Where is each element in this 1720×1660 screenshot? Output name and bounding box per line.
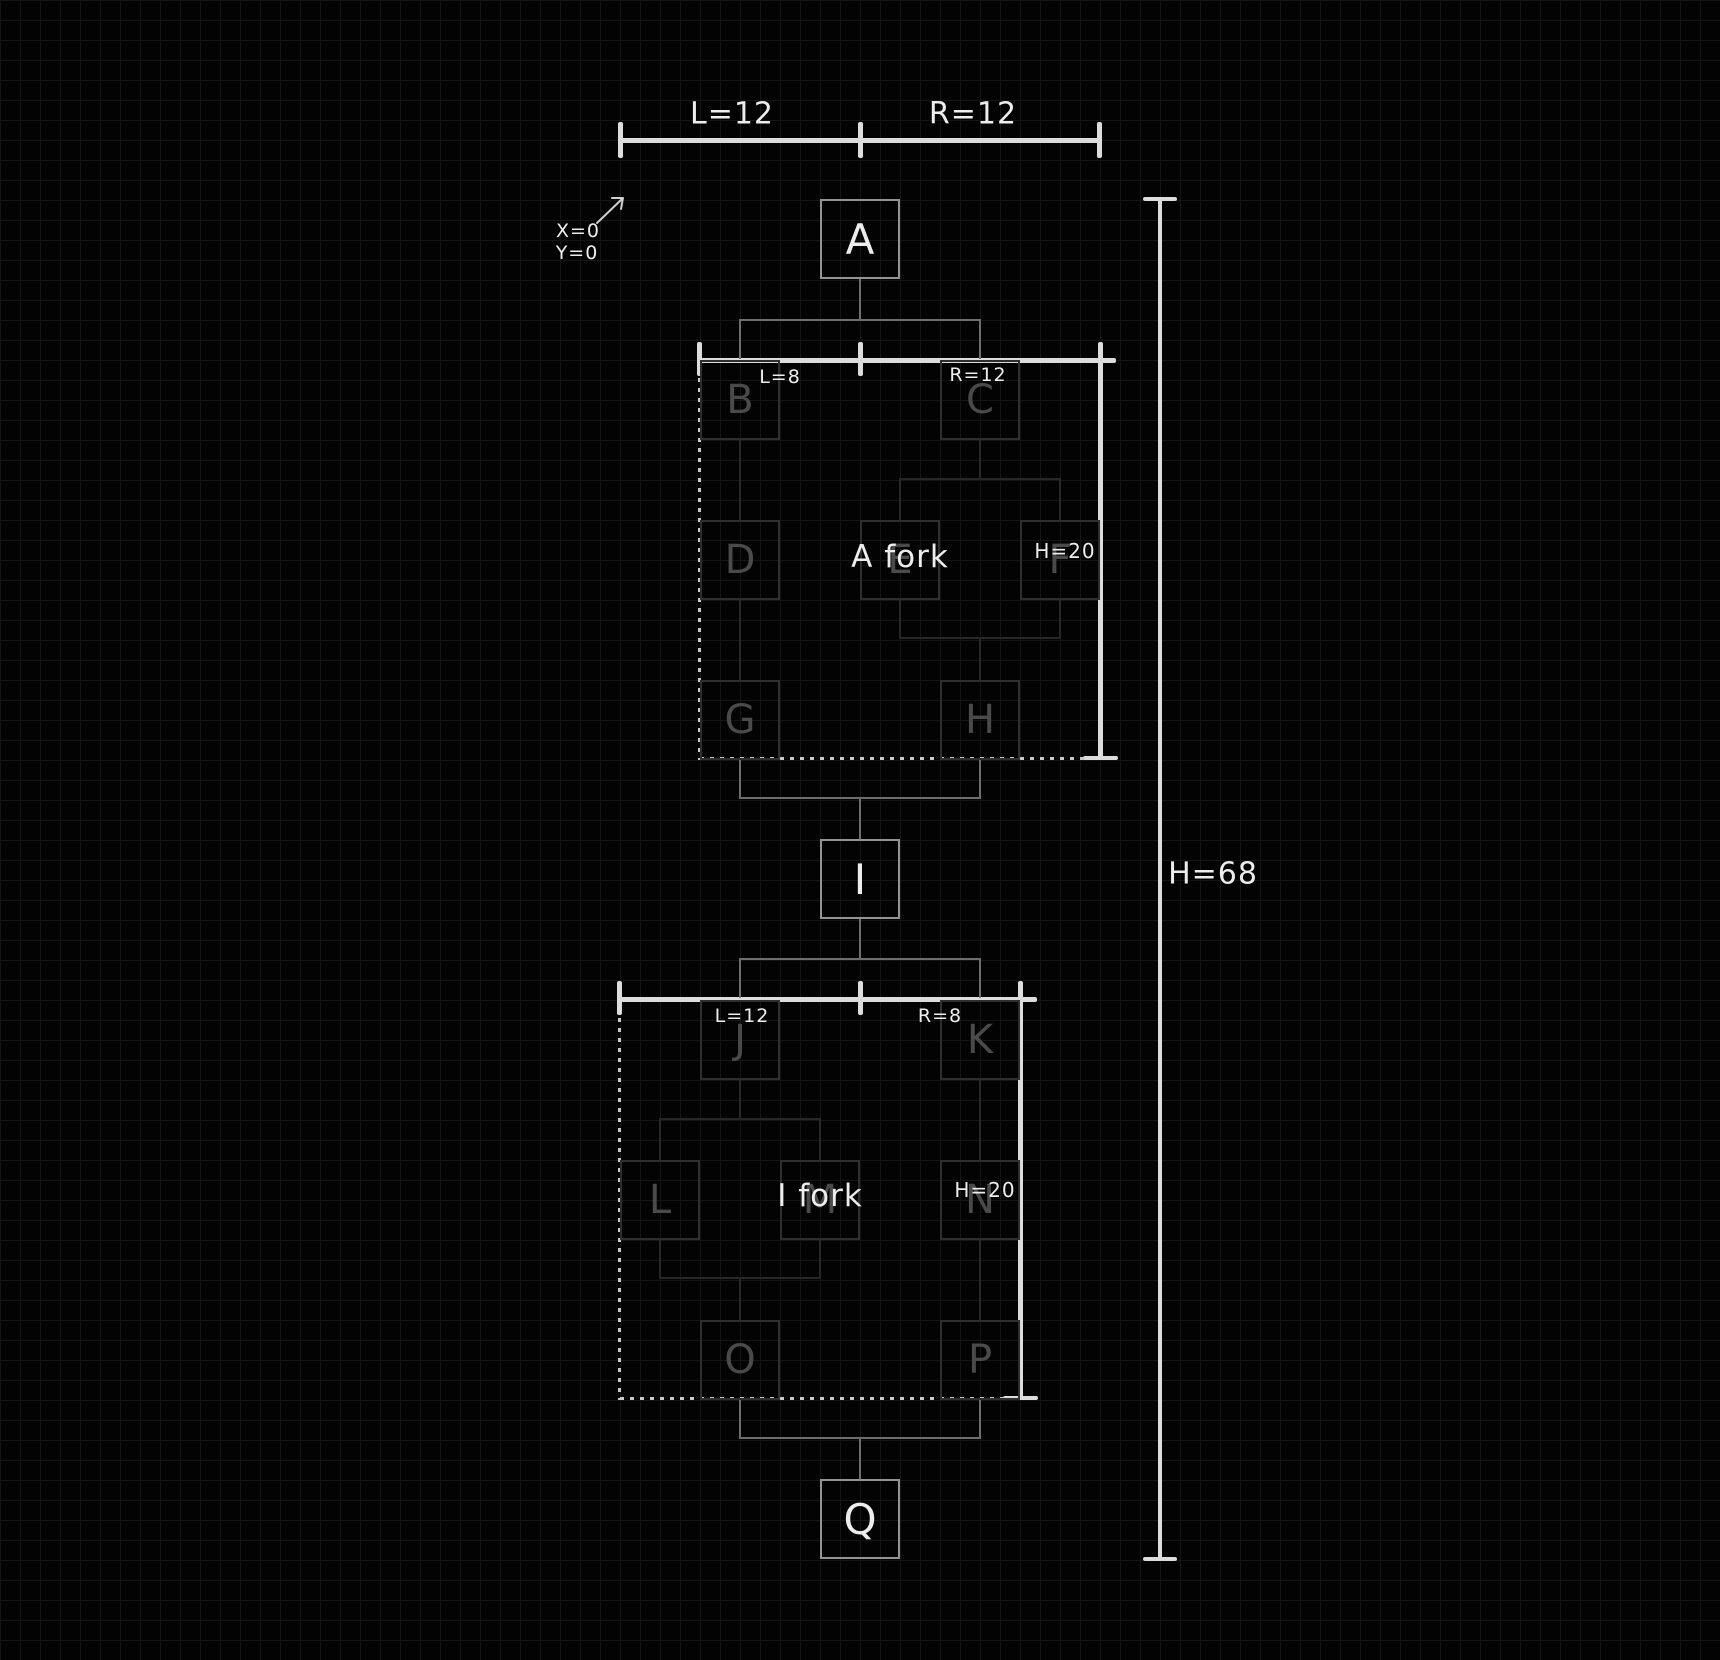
node-a-box[interactable]: A: [820, 199, 900, 279]
top-ruler-tick-right: [1097, 122, 1102, 158]
merge-to-o: [739, 1277, 741, 1320]
a-stem: [859, 279, 861, 321]
c-drop-e: [899, 478, 901, 520]
fork-a-node-g-letter: G: [725, 697, 756, 743]
node-i-box[interactable]: I: [820, 839, 900, 919]
fork-i-node-l-box[interactable]: L: [620, 1160, 700, 1240]
b-to-d: [739, 440, 741, 520]
fork-a-left-label[interactable]: L=8: [759, 366, 801, 388]
fork-a-ruler-tick-center: [858, 342, 863, 376]
i-fork-out-right: [979, 1400, 981, 1439]
fork-a-node-g-box[interactable]: G: [700, 680, 780, 760]
fork-a-node-h-box[interactable]: H: [940, 680, 1020, 760]
fork-a-node-h-letter: H: [965, 697, 995, 743]
fork-i-title[interactable]: I fork: [777, 1178, 863, 1214]
fork-i-node-o-box[interactable]: O: [700, 1320, 780, 1400]
i-stem-top: [859, 797, 861, 840]
a-fork-out-right: [979, 760, 981, 799]
i-stem-bottom: [859, 919, 861, 960]
fork-i-node-p-box[interactable]: P: [940, 1320, 1020, 1400]
fork-i-node-l-letter: L: [649, 1177, 671, 1223]
height-ruler-cap-top: [1143, 197, 1177, 201]
fork-i-left-label[interactable]: L=12: [715, 1005, 770, 1027]
top-ruler-tick-center: [858, 122, 863, 158]
fork-i-node-p-letter: P: [968, 1337, 992, 1383]
fork-a-height-label[interactable]: H=20: [1034, 539, 1095, 563]
c-stem: [979, 440, 981, 479]
fork-a-node-d-box[interactable]: D: [700, 520, 780, 600]
c-drop-f: [1059, 478, 1061, 520]
i-fork-drop-left: [739, 958, 741, 998]
fork-i-node-o-letter: O: [724, 1337, 755, 1383]
a-fork-drop-right: [979, 319, 981, 359]
merge-to-h: [979, 637, 981, 680]
node-q-letter: Q: [843, 1495, 876, 1544]
fork-a-height-cap: [1083, 756, 1118, 760]
origin-y-label[interactable]: Y=0: [556, 242, 599, 264]
origin-x-label[interactable]: X=0: [556, 220, 600, 242]
l-out: [659, 1240, 661, 1279]
top-ruler-left-label[interactable]: L=12: [690, 97, 774, 132]
n-to-p: [979, 1240, 981, 1320]
diagram-canvas[interactable]: AIQBCDEFGHJKLMNOPL=12R=12X=0Y=0L=8R=12H=…: [0, 0, 1720, 1660]
j-drop-m: [819, 1118, 821, 1160]
fork-i-ruler-tick-center: [858, 981, 863, 1015]
node-q-box[interactable]: Q: [820, 1479, 900, 1559]
height-ruler-line: [1158, 199, 1162, 1560]
fork-a-title[interactable]: A fork: [851, 539, 949, 575]
c-fork-bracket: [899, 478, 1061, 480]
i-fork-out-left: [739, 1400, 741, 1439]
height-ruler-label[interactable]: H=68: [1168, 857, 1258, 892]
fork-i-ruler-tick-left: [617, 981, 622, 1015]
node-i-letter: I: [854, 855, 866, 904]
top-ruler-tick-left: [618, 122, 623, 158]
height-ruler-cap-bottom: [1143, 1557, 1177, 1561]
a-fork-bracket: [739, 319, 981, 321]
j-drop-l: [659, 1118, 661, 1160]
a-fork-drop-left: [739, 319, 741, 359]
fork-i-right-label[interactable]: R=8: [918, 1005, 962, 1027]
d-to-g: [739, 600, 741, 680]
m-out: [819, 1240, 821, 1279]
node-a-letter: A: [846, 215, 875, 264]
q-stem: [859, 1437, 861, 1480]
a-fork-out-left: [739, 760, 741, 799]
fork-a-right-label[interactable]: R=12: [949, 364, 1006, 386]
e-out: [899, 600, 901, 639]
top-ruler-right-label[interactable]: R=12: [929, 97, 1017, 132]
i-fork-bracket: [739, 958, 981, 960]
fork-i-height-label[interactable]: H=20: [954, 1178, 1015, 1202]
j-fork-bracket: [659, 1118, 821, 1120]
i-fork-drop-right: [979, 958, 981, 998]
j-stem: [739, 1080, 741, 1120]
k-to-n: [979, 1080, 981, 1160]
fork-i-node-k-letter: K: [967, 1017, 993, 1063]
fork-a-node-b-letter: B: [726, 377, 753, 423]
f-out: [1059, 600, 1061, 639]
fork-a-node-d-letter: D: [725, 537, 756, 583]
